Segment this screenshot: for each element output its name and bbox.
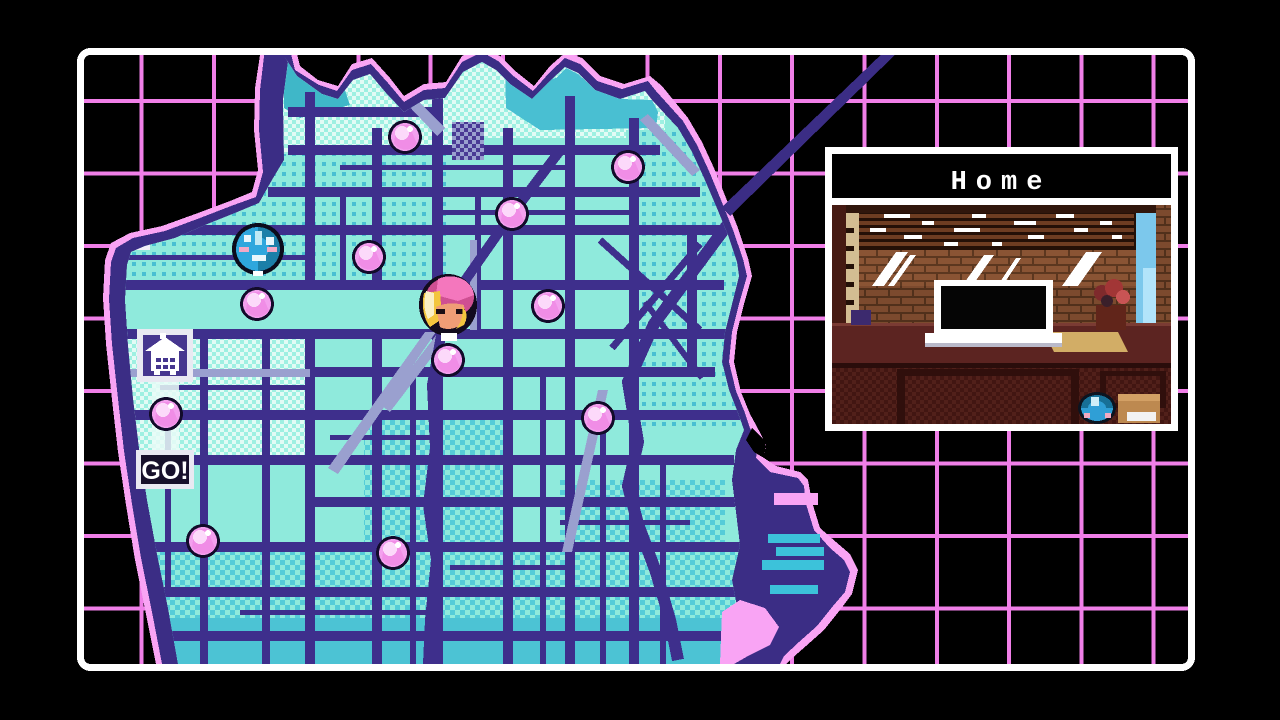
svg-text:Home: Home xyxy=(951,168,1052,198)
svg-text:GO!: GO! xyxy=(141,457,188,485)
